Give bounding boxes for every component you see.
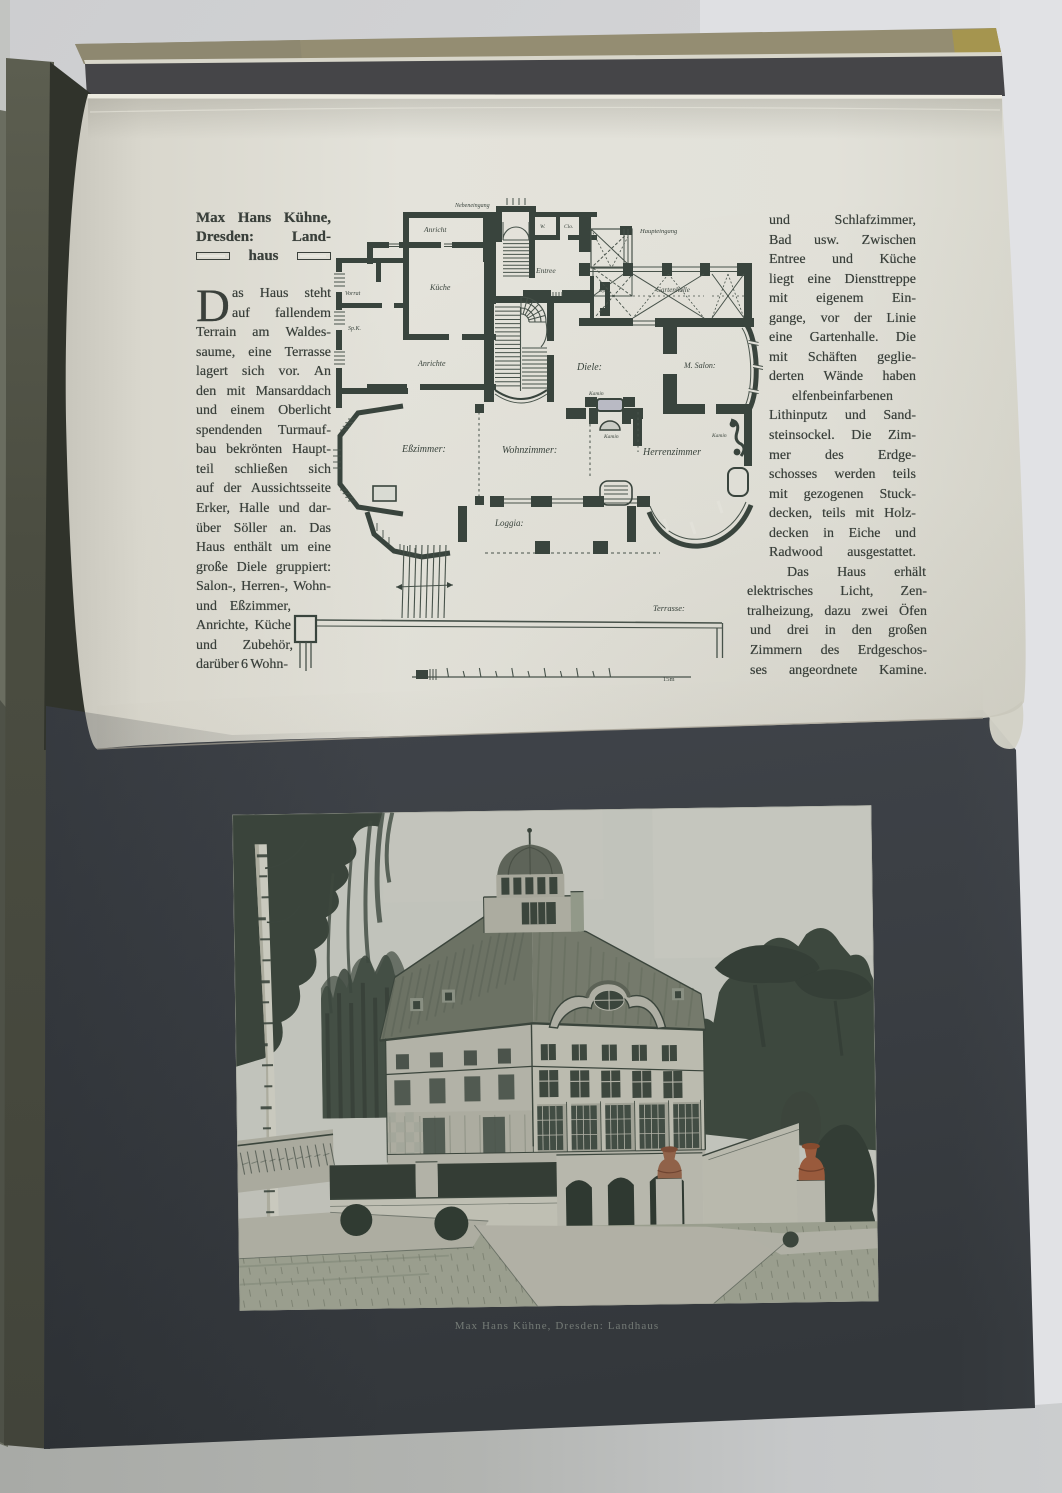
svg-text:Nebeneingang: Nebeneingang xyxy=(454,203,490,209)
svg-text:15m: 15m xyxy=(663,676,675,683)
svg-text:Loggia:: Loggia: xyxy=(494,518,524,528)
svg-text:Küche: Küche xyxy=(429,283,451,292)
svg-text:Diele:: Diele: xyxy=(576,362,602,373)
svg-text:Sp.K.: Sp.K. xyxy=(348,326,361,332)
svg-text:Terrasse:: Terrasse: xyxy=(653,603,685,613)
svg-text:Anrichte: Anrichte xyxy=(417,359,446,368)
svg-text:Gartenhalle: Gartenhalle xyxy=(656,286,690,294)
svg-text:W.: W. xyxy=(540,224,545,230)
svg-text:M. Salon:: M. Salon: xyxy=(683,361,716,370)
svg-text:Kamin: Kamin xyxy=(588,391,604,397)
svg-text:Kamin: Kamin xyxy=(711,433,727,439)
svg-text:Entree: Entree xyxy=(535,266,556,275)
svg-text:Herrenzimmer: Herrenzimmer xyxy=(642,447,701,458)
svg-text:Vorrat: Vorrat xyxy=(345,291,361,297)
svg-text:Clo.: Clo. xyxy=(564,224,573,230)
svg-text:Wohnzimmer:: Wohnzimmer: xyxy=(502,445,557,456)
svg-text:Ofen: Ofen xyxy=(599,289,609,294)
svg-text:Eßzimmer:: Eßzimmer: xyxy=(401,444,446,455)
svg-text:Kamin: Kamin xyxy=(603,434,619,440)
svg-text:Haupteingang: Haupteingang xyxy=(639,228,678,235)
svg-text:Anricht: Anricht xyxy=(423,225,447,234)
